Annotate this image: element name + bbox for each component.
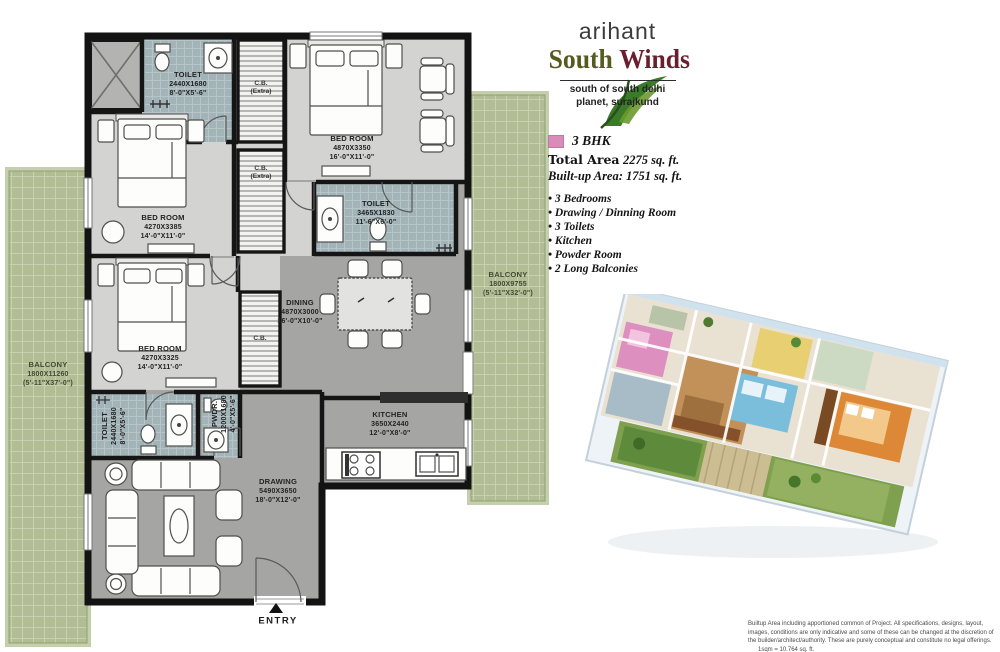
- feature-item: Kitchen: [548, 235, 778, 247]
- cb-sub: (Extra): [251, 88, 272, 95]
- room-name: TOILET: [356, 199, 397, 209]
- room-label-bedroom-bottom: BED ROOM 4270X3325 14'-0"X11'-0": [138, 344, 183, 372]
- label-cb-extra-2: C.B. (Extra): [251, 165, 272, 181]
- isometric-render: [578, 294, 968, 584]
- room-name: BED ROOM: [141, 213, 186, 223]
- room-size: 18'-0"X12'-0": [255, 496, 300, 505]
- room-label-balcony-right: BALCONY 1800X9755 (5'-11"X32'-0"): [483, 270, 533, 298]
- feature-item: 2 Long Balconies: [548, 263, 778, 275]
- room-dim: 4870X3350: [330, 144, 375, 153]
- room-size: 16'-0"X11'-0": [330, 153, 375, 162]
- feature-item: Drawing / Dinning Room: [548, 207, 778, 219]
- brand-divider: [560, 80, 676, 81]
- total-area-value: 2275 sq. ft.: [623, 153, 679, 167]
- brand-logo-text: South Winds: [549, 46, 687, 73]
- room-dim: 1800X9755: [483, 280, 533, 289]
- room-name: BED ROOM: [330, 134, 375, 144]
- room-label-toilet-top: TOILET 2440X1680 8'-0"X5'-6": [169, 70, 207, 98]
- total-area-row: Total Area 2275 sq. ft.: [548, 152, 778, 168]
- disclaimer-body: Builtup Area including apportioned commo…: [748, 621, 993, 644]
- disclaimer-text: Builtup Area including apportioned commo…: [748, 620, 995, 652]
- room-dim: 2440X1680: [169, 80, 207, 89]
- room-name: KITCHEN: [369, 410, 410, 420]
- room-name: TOILET: [169, 70, 207, 80]
- builtup-area: Built-up Area: 1751 sq. ft.: [548, 169, 778, 184]
- room-size: 11'-6"X6'-0": [356, 218, 397, 227]
- room-size: (5'-11"X32'-0"): [483, 289, 533, 298]
- room-dim: 3650X2440: [369, 420, 410, 429]
- brand-tagline-2: planet, surajkund: [545, 97, 690, 110]
- room-dim: 4270X3325: [138, 354, 183, 363]
- brand-south: South: [549, 44, 613, 74]
- room-name: TOILET: [100, 407, 110, 445]
- legend-swatch: [548, 135, 564, 148]
- room-size: 4'-0"X5'-6": [229, 395, 238, 433]
- brand-block: arihant South Winds south of south delhi…: [545, 18, 690, 109]
- brochure-page: TOILET 2440X1680 8'-0"X5'-6" BED ROOM 48…: [0, 0, 1000, 652]
- unit-type-row: 3 BHK: [548, 133, 778, 149]
- room-name: BED ROOM: [138, 344, 183, 354]
- room-dim: 4270X3385: [141, 223, 186, 232]
- room-label-kitchen: KITCHEN 3650X2440 12'-0"X8'-0": [369, 410, 410, 438]
- feature-item: Powder Room: [548, 249, 778, 261]
- room-size: 16'-0"X10'-0": [277, 317, 322, 326]
- entry-label: ENTRY: [258, 616, 297, 627]
- room-dim: 4870X3000: [277, 308, 322, 317]
- feature-item: 3 Toilets: [548, 221, 778, 233]
- cb-name: C.B.: [254, 80, 267, 87]
- room-size: (5'-11"X37'-0"): [23, 379, 73, 388]
- balcony-left-area: [5, 167, 91, 647]
- feature-list: 3 Bedrooms Drawing / Dinning Room 3 Toil…: [548, 193, 778, 275]
- entry-opening: [254, 596, 306, 608]
- cb-sub: (Extra): [251, 173, 272, 180]
- room-name: DINING: [277, 298, 322, 308]
- room-label-bedroom-top: BED ROOM 4870X3350 16'-0"X11'-0": [330, 134, 375, 162]
- room-label-toilet-bottom: TOILET 2440X1680 8'-0"X5'-6": [100, 407, 128, 445]
- room-dim: 1200X1680: [220, 395, 229, 433]
- room-label-toilet-mid: TOILET 3465X1830 11'-6"X6'-0": [356, 199, 397, 227]
- label-cb-extra-1: C.B. (Extra): [251, 80, 272, 96]
- disclaimer-conversion: 1sqm = 10.764 sq. ft.: [758, 647, 814, 652]
- total-area-label: Total Area: [548, 152, 620, 167]
- room-dim: 3465X1830: [356, 209, 397, 218]
- room-label-balcony-left: BALCONY 1800X11260 (5'-11"X37'-0"): [23, 360, 73, 388]
- room-dim: 2440X1680: [110, 407, 119, 445]
- specs-block: 3 BHK Total Area 2275 sq. ft. Built-up A…: [548, 133, 778, 277]
- cb-name: C.B.: [253, 335, 266, 342]
- feature-item: 3 Bedrooms: [548, 193, 778, 205]
- label-cb-3: C.B.: [253, 335, 266, 343]
- brand-name: arihant: [545, 18, 690, 45]
- brand-winds: Winds: [619, 44, 690, 74]
- room-name: PWDR.: [210, 395, 220, 433]
- brand-tagline-1: south of south delhi: [545, 84, 690, 97]
- room-label-dining: DINING 4870X3000 16'-0"X10'-0": [277, 298, 322, 326]
- room-size: 8'-0"X5'-6": [169, 89, 207, 98]
- cb-name: C.B.: [254, 165, 267, 172]
- room-size: 12'-0"X8'-0": [369, 429, 410, 438]
- room-size: 14'-0"X11'-0": [138, 363, 183, 372]
- room-size: 14'-0"X11'-0": [141, 232, 186, 241]
- room-name: BALCONY: [23, 360, 73, 370]
- lift-shaft: [90, 40, 142, 110]
- room-dim: 5490X3650: [255, 487, 300, 496]
- unit-type: 3 BHK: [572, 133, 611, 149]
- room-label-bedroom-mid: BED ROOM 4270X3385 14'-0"X11'-0": [141, 213, 186, 241]
- room-name: BALCONY: [483, 270, 533, 280]
- room-dim: 1800X11260: [23, 370, 73, 379]
- room-name: DRAWING: [255, 477, 300, 487]
- room-label-drawing: DRAWING 5490X3650 18'-0"X12'-0": [255, 477, 300, 505]
- room-label-powder: PWDR. 1200X1680 4'-0"X5'-6": [210, 395, 238, 433]
- room-size: 8'-0"X5'-6": [119, 407, 128, 445]
